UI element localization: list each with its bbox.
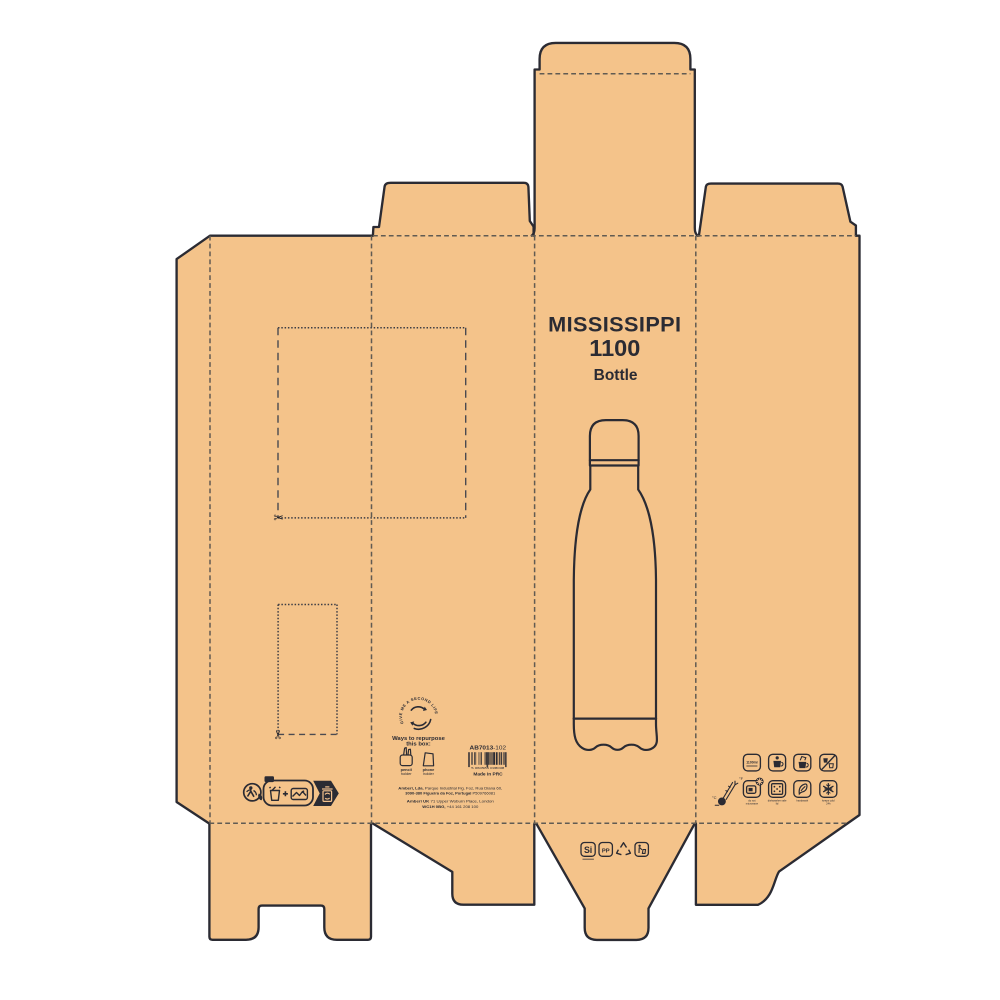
svg-text:✂: ✂	[273, 511, 284, 525]
svg-text:holder: holder	[401, 771, 413, 776]
svg-text:24h: 24h	[826, 802, 831, 806]
svg-text:MISSISSIPPI: MISSISSIPPI	[548, 311, 681, 336]
svg-text:Si: Si	[584, 845, 592, 855]
svg-text:3090-380 Figueira da Foz, Port: 3090-380 Figueira da Foz, Portugal P5097…	[405, 791, 496, 796]
svg-text:handwash: handwash	[796, 799, 808, 803]
svg-text:AB7013-102: AB7013-102	[470, 745, 507, 751]
svg-text:1100: 1100	[589, 335, 640, 361]
svg-text:this box:: this box:	[406, 742, 431, 748]
svg-text:microwave: microwave	[746, 802, 759, 806]
svg-text:°C: °C	[712, 795, 717, 800]
svg-text:✂: ✂	[271, 729, 285, 740]
svg-text:°F: °F	[739, 776, 744, 781]
svg-text:PP: PP	[602, 848, 610, 854]
svg-text:WC1H 0BG, +44 161 208 100: WC1H 0BG, +44 161 208 100	[422, 804, 479, 809]
svg-text:holder: holder	[423, 771, 435, 776]
svg-text:5 060585 038038: 5 060585 038038	[471, 766, 505, 770]
svg-text:1100ml: 1100ml	[746, 760, 757, 764]
svg-text:Bottle: Bottle	[594, 367, 638, 384]
svg-text:Made in PRC: Made in PRC	[473, 771, 503, 777]
